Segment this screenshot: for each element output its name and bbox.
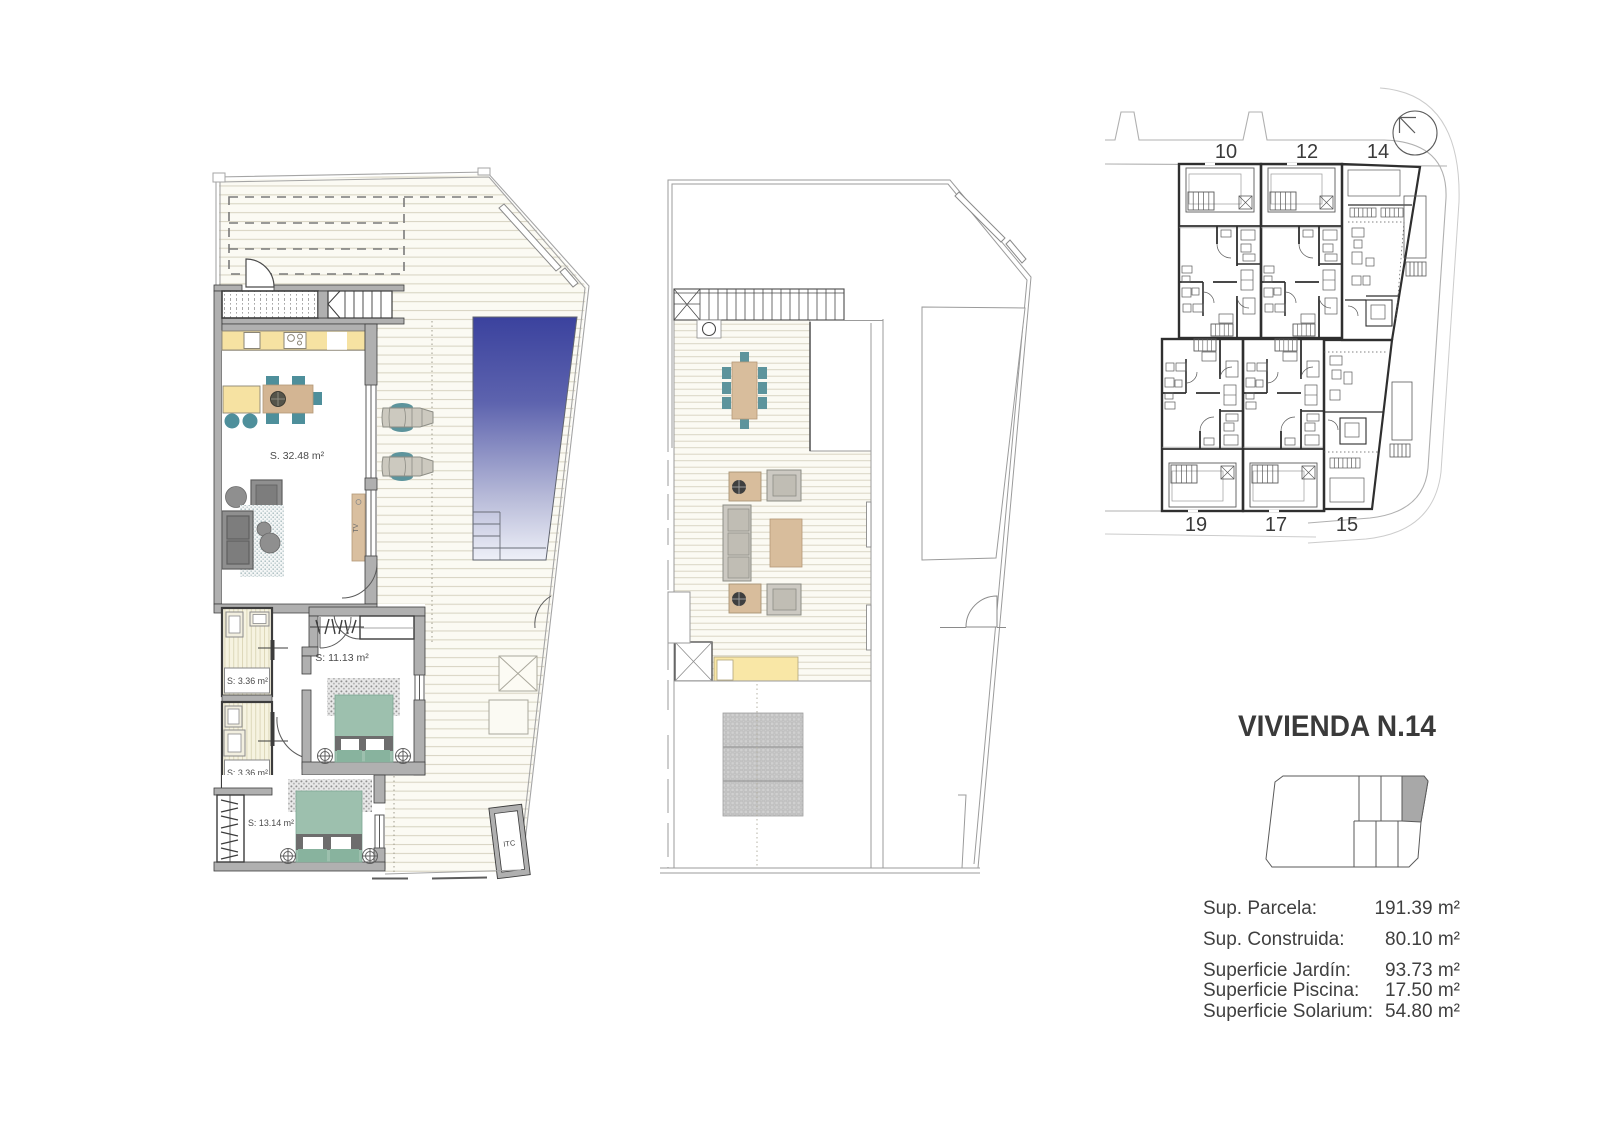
- svg-text:TV: TV: [353, 523, 360, 532]
- svg-text:19: 19: [1185, 514, 1207, 536]
- svg-text:54.80 m²: 54.80 m²: [1385, 1001, 1460, 1022]
- svg-text:S: 13.14 m²: S: 13.14 m²: [248, 818, 295, 829]
- svg-text:80.10 m²: 80.10 m²: [1385, 929, 1460, 950]
- svg-text:14: 14: [1367, 141, 1389, 163]
- svg-text:12: 12: [1296, 141, 1318, 163]
- svg-text:Superficie Jardín:: Superficie Jardín:: [1203, 960, 1351, 981]
- svg-text:10: 10: [1215, 141, 1237, 163]
- svg-text:S: 11.13 m²: S: 11.13 m²: [315, 652, 369, 664]
- svg-text:17.50 m²: 17.50 m²: [1385, 980, 1460, 1001]
- svg-text:191.39 m²: 191.39 m²: [1374, 898, 1460, 919]
- svg-text:93.73 m²: 93.73 m²: [1385, 960, 1460, 981]
- svg-text:15: 15: [1336, 514, 1358, 536]
- svg-text:Superficie Piscina:: Superficie Piscina:: [1203, 980, 1359, 1001]
- svg-text:S: 3.36 m²: S: 3.36 m²: [227, 676, 269, 687]
- svg-text:Sup. Construida:: Sup. Construida:: [1203, 929, 1345, 950]
- svg-text:Superficie Solarium:: Superficie Solarium:: [1203, 1001, 1373, 1022]
- svg-text:ITC: ITC: [503, 838, 517, 848]
- svg-text:S. 32.48 m²: S. 32.48 m²: [270, 450, 325, 462]
- svg-text:VIVIENDA N.14: VIVIENDA N.14: [1238, 710, 1436, 743]
- svg-text:Sup. Parcela:: Sup. Parcela:: [1203, 898, 1317, 919]
- svg-text:17: 17: [1265, 514, 1287, 536]
